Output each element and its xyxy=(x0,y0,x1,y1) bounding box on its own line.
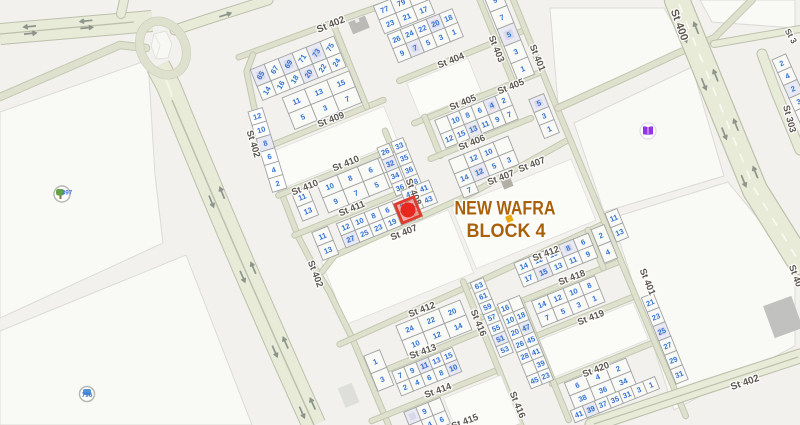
svg-text:BLOCK 4: BLOCK 4 xyxy=(467,221,546,242)
svg-text:796: 796 xyxy=(82,392,93,399)
svg-text:397: 397 xyxy=(62,190,73,197)
